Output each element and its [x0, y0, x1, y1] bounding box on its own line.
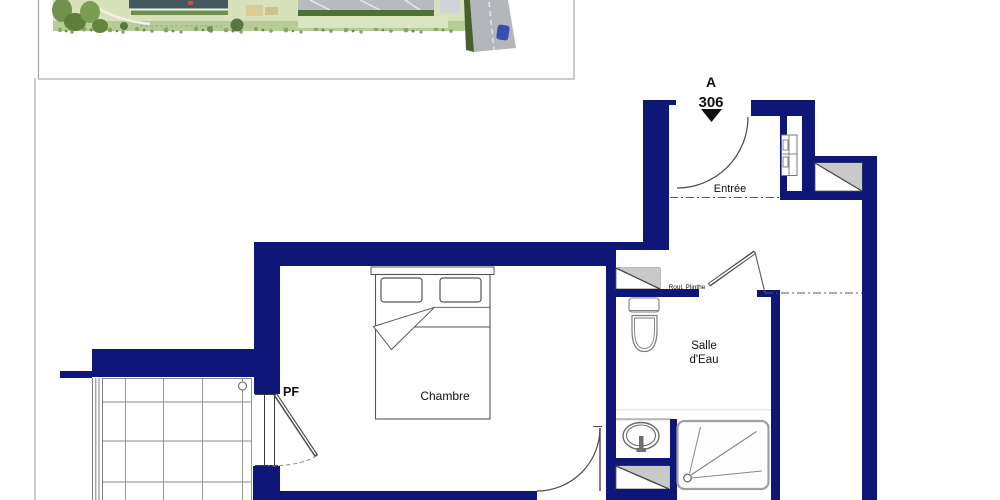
svg-text:A: A	[706, 74, 716, 90]
svg-text:d'Eau: d'Eau	[689, 354, 718, 366]
svg-text:Entrée: Entrée	[714, 183, 746, 195]
svg-text:Salle: Salle	[691, 340, 717, 352]
svg-text:306: 306	[698, 94, 723, 111]
svg-text:Chambre: Chambre	[420, 389, 470, 403]
svg-text:PF: PF	[283, 385, 299, 399]
svg-text:Roul. Plinthe: Roul. Plinthe	[669, 284, 706, 291]
